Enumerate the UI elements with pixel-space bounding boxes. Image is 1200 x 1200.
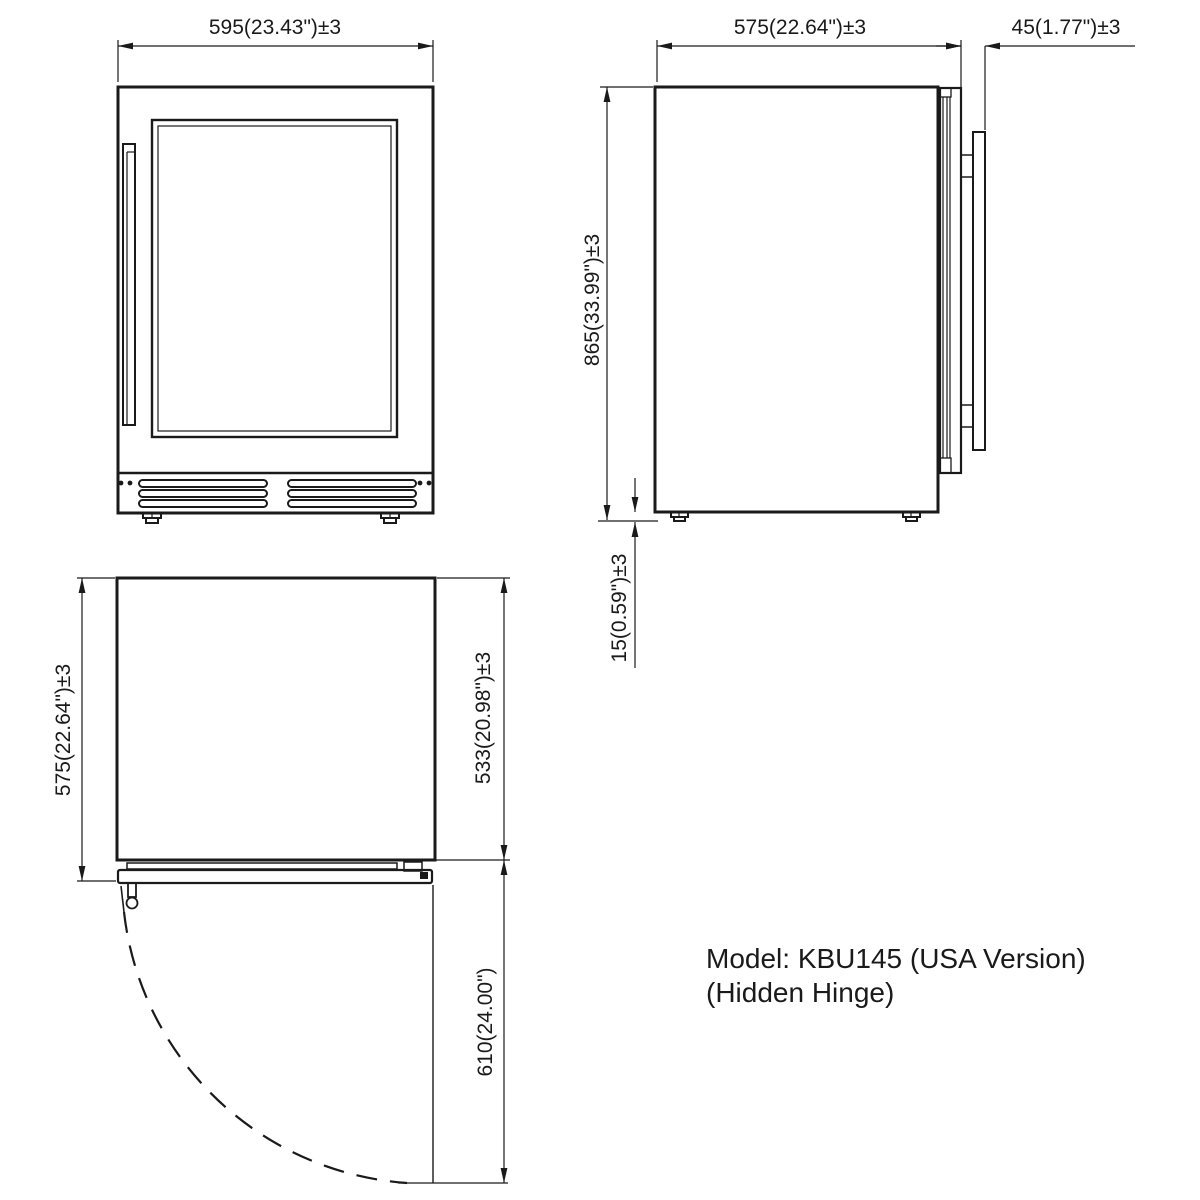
handle-mount xyxy=(961,405,973,427)
top-body-outline xyxy=(117,578,435,860)
vent-slat xyxy=(139,480,267,487)
front-view: 595(23.43")±3 xyxy=(118,16,433,523)
model-label-line2: (Hidden Hinge) xyxy=(706,977,894,1008)
dim-label-door-thickness: 45(1.77")±3 xyxy=(1012,16,1121,39)
vent-slat xyxy=(139,500,267,507)
front-glass-inner xyxy=(158,126,391,431)
dim-label-total-height: 865(33.99")±3 xyxy=(581,234,604,366)
dim-label-leg-height: 15(0.59")±3 xyxy=(608,554,631,663)
model-label: Model: KBU145 (USA Version) (Hidden Hing… xyxy=(706,943,1086,1008)
dim-door-thickness xyxy=(936,46,1135,130)
dim-label-side-depth: 575(22.64")±3 xyxy=(734,16,866,39)
dim-label-body-depth: 533(20.98")±3 xyxy=(472,652,495,784)
top-door-closed xyxy=(118,862,432,883)
side-view: 575(22.64")±3 45(1.77")±3 xyxy=(581,16,1135,668)
dim-front-width xyxy=(118,40,433,82)
handle-mount xyxy=(961,155,973,177)
vent-slat xyxy=(288,490,416,497)
dim-side-depth xyxy=(657,40,961,88)
dim-label-door-swing: 610(24.00") xyxy=(474,967,497,1076)
door-swing-arc xyxy=(124,912,407,1183)
hinge-pivot xyxy=(420,872,428,879)
top-view: 575(22.64")±3 533(20.98")±3 610(24.00") xyxy=(52,578,510,1183)
top-door-handle xyxy=(127,883,138,909)
dimension-drawing: 595(23.43")±3 xyxy=(0,0,1200,1200)
top-door-slab xyxy=(118,870,432,883)
front-body-outline xyxy=(118,87,433,513)
technical-drawing-canvas: 595(23.43")±3 xyxy=(0,0,1200,1200)
door-swing-start-line xyxy=(121,886,124,912)
screw-dot xyxy=(128,481,133,486)
front-glass-outer xyxy=(152,120,397,437)
top-door-gasket xyxy=(127,863,397,869)
model-label-line1: Model: KBU145 (USA Version) xyxy=(706,943,1086,974)
vent-slat xyxy=(288,480,416,487)
front-door-handle xyxy=(123,144,135,425)
front-vent-grille xyxy=(139,480,416,507)
side-body-outline xyxy=(655,87,938,512)
dim-top-depth xyxy=(77,578,116,881)
screw-dot xyxy=(119,481,124,486)
side-door-panel xyxy=(940,88,961,473)
screw-dot xyxy=(418,481,423,486)
vent-slat xyxy=(288,500,416,507)
vent-slat xyxy=(139,490,267,497)
dim-total-height xyxy=(600,87,653,520)
side-door-handle xyxy=(961,132,985,450)
screw-dot xyxy=(427,481,432,486)
front-screws xyxy=(119,481,432,486)
dim-label-front-width: 595(23.43")±3 xyxy=(209,16,341,39)
dim-label-top-depth: 575(22.64")±3 xyxy=(52,664,75,796)
